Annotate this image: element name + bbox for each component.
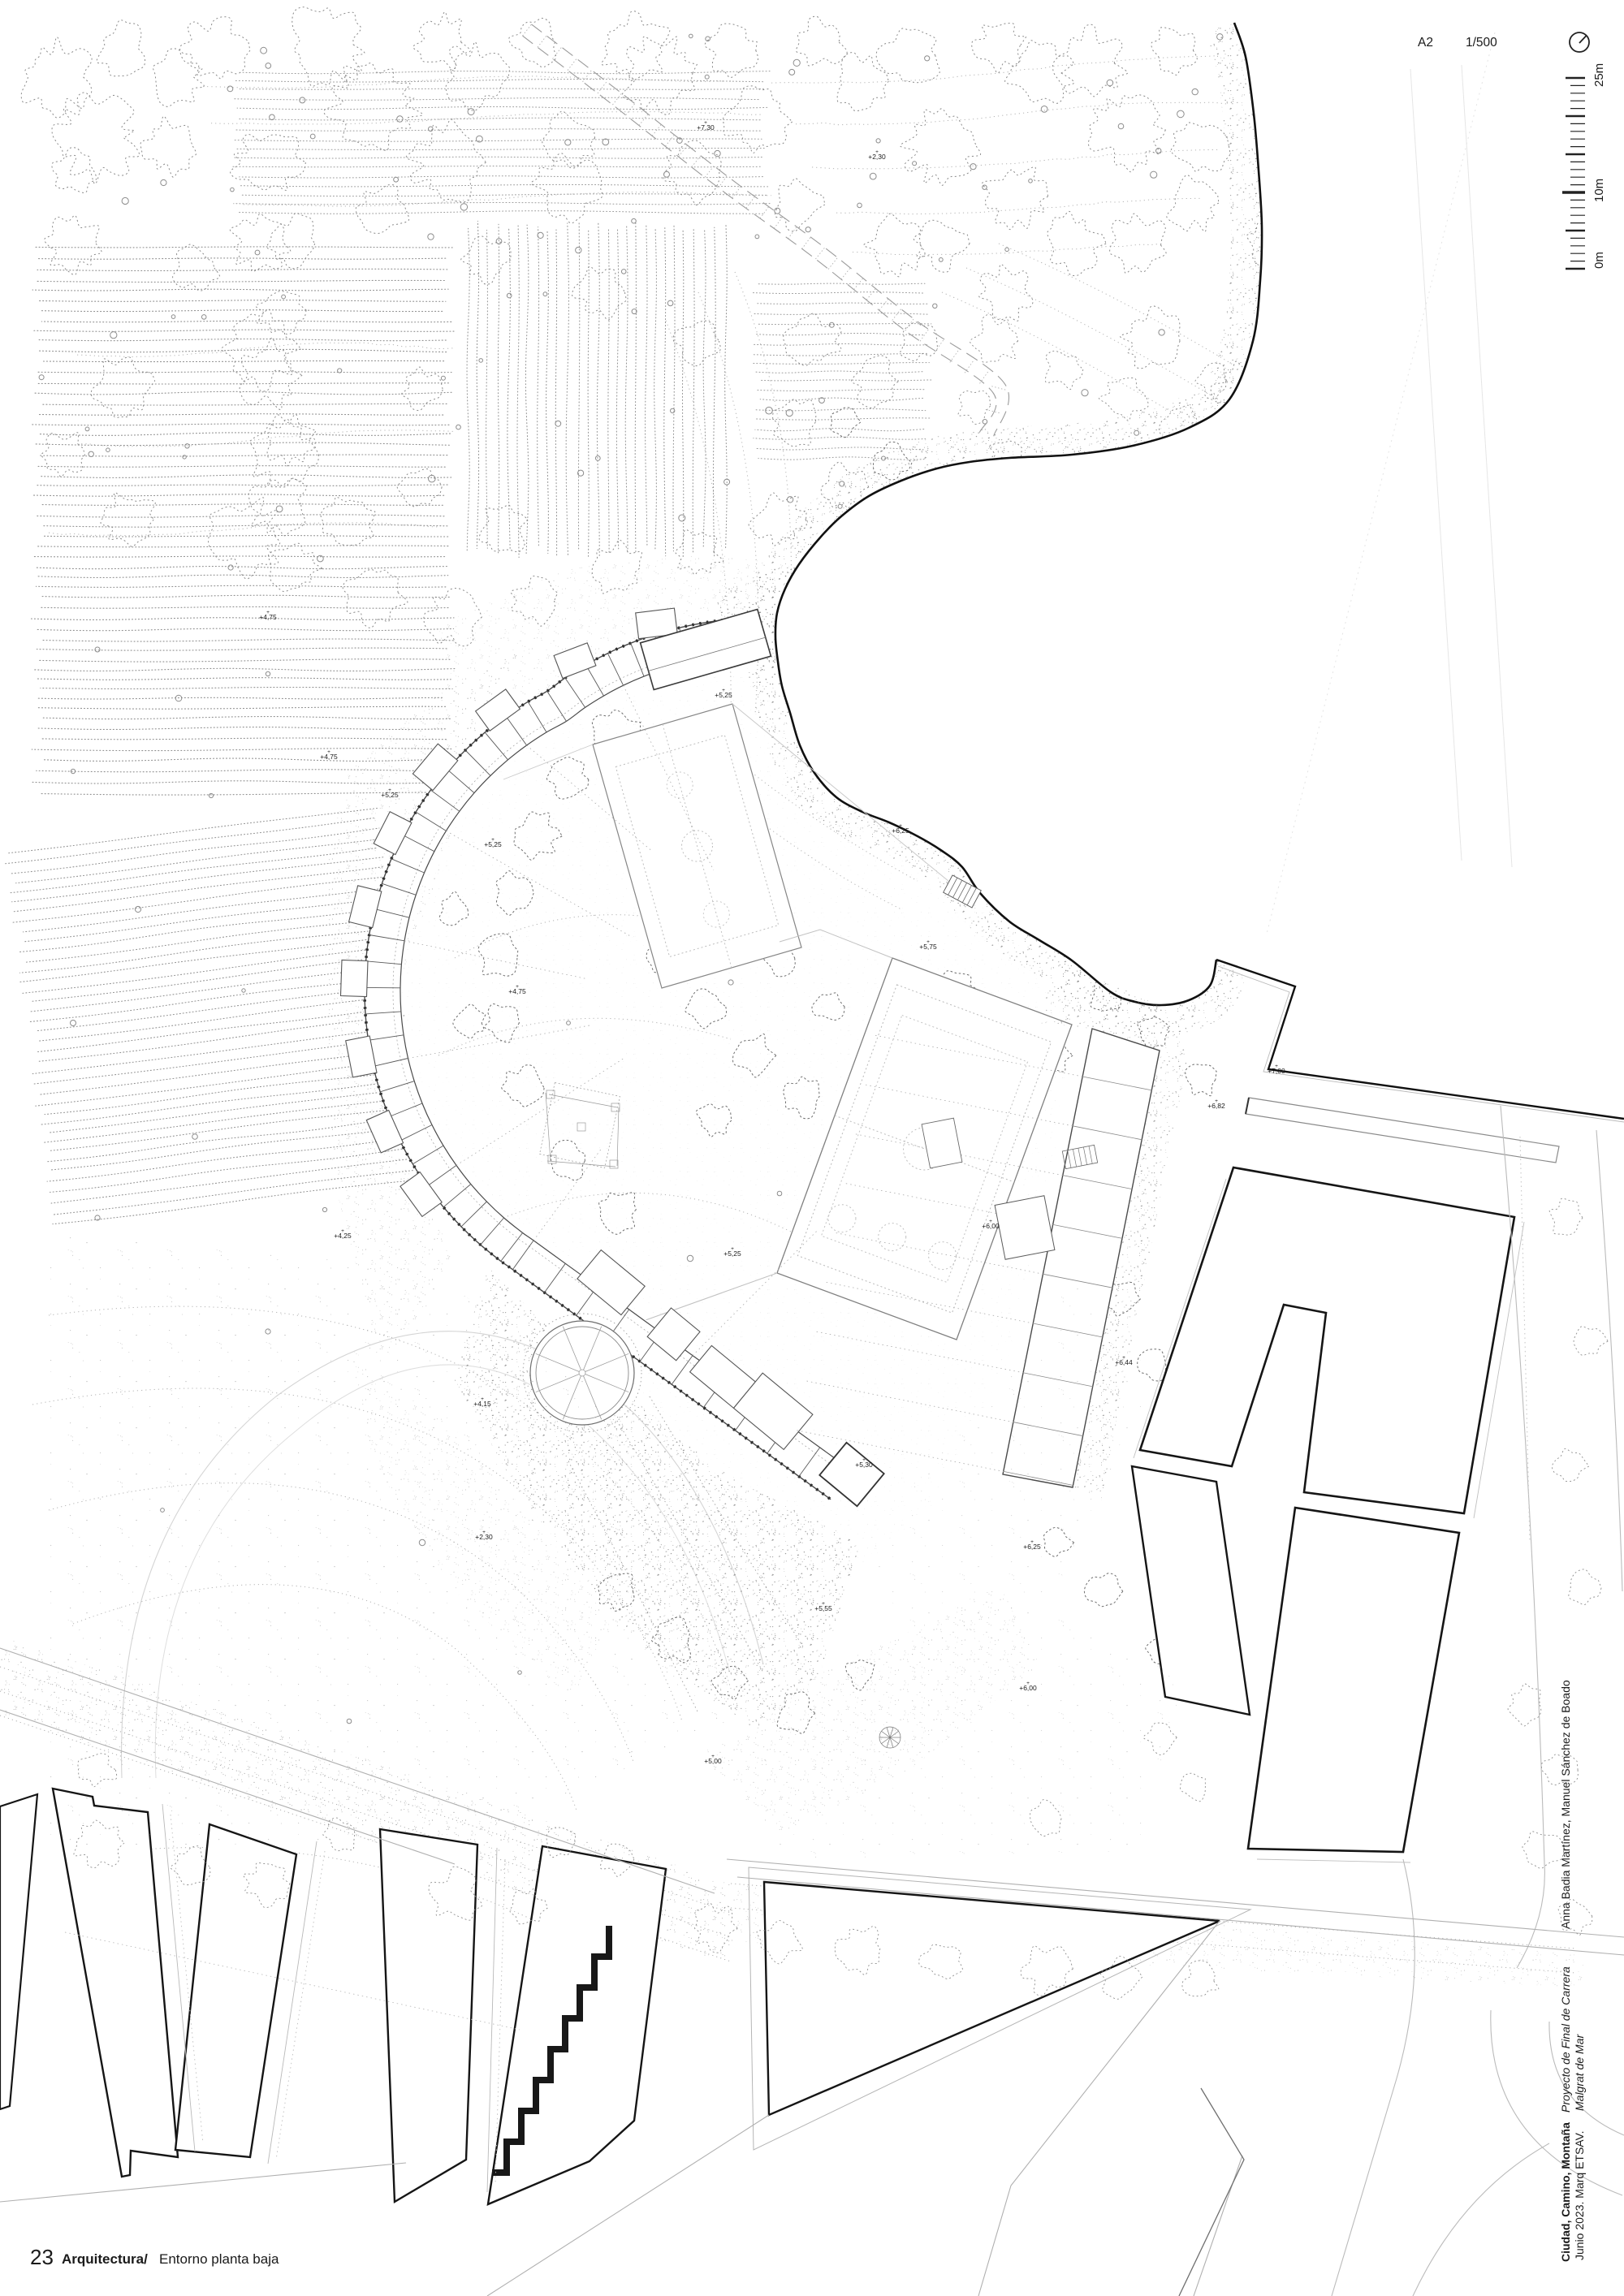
svg-text:+: + <box>1026 1681 1030 1686</box>
svg-text:Junio 2023. Marq ETSAV.: Junio 2023. Marq ETSAV. <box>1573 2130 1586 2260</box>
svg-text:Arquitectura/: Arquitectura/ <box>62 2251 148 2267</box>
svg-text:Anna Badia Martínez, Manuel Sá: Anna Badia Martínez, Manuel Sánchez de B… <box>1559 1680 1572 1929</box>
svg-text:10m: 10m <box>1592 179 1606 202</box>
svg-text:+: + <box>1030 1539 1034 1545</box>
svg-text:+: + <box>711 1754 715 1759</box>
svg-text:+: + <box>862 1457 866 1463</box>
svg-text:+: + <box>926 939 930 945</box>
svg-text:Ciudad, Camino, Montaña: Ciudad, Camino, Montaña <box>1559 2122 1572 2262</box>
svg-text:+: + <box>1275 1064 1278 1069</box>
svg-text:+: + <box>1215 1098 1218 1104</box>
svg-text:+: + <box>989 1219 992 1224</box>
svg-text:23: 23 <box>30 2245 54 2269</box>
svg-text:+: + <box>481 1396 484 1402</box>
svg-text:+: + <box>266 610 270 615</box>
svg-text:+: + <box>875 149 879 155</box>
svg-text:0m: 0m <box>1592 252 1606 269</box>
svg-text:+: + <box>327 749 330 755</box>
svg-text:+: + <box>822 1601 825 1607</box>
svg-text:+: + <box>899 823 902 829</box>
svg-text:25m: 25m <box>1592 63 1606 87</box>
svg-text:+: + <box>482 1530 486 1535</box>
svg-text:+: + <box>341 1228 344 1234</box>
svg-text:Entorno planta baja: Entorno planta baja <box>159 2251 279 2267</box>
svg-text:+: + <box>516 984 519 990</box>
svg-text:1/500: 1/500 <box>1466 36 1497 50</box>
svg-text:+: + <box>731 1246 734 1252</box>
svg-text:A2: A2 <box>1418 36 1433 50</box>
svg-text:Malgrat de Mar: Malgrat de Mar <box>1573 2034 1586 2111</box>
svg-text:+: + <box>704 120 707 126</box>
svg-text:+: + <box>1122 1355 1125 1361</box>
svg-text:+: + <box>722 688 725 693</box>
svg-text:+: + <box>491 837 495 843</box>
svg-text:Proyecto de Final de Carrera: Proyecto de Final de Carrera <box>1559 1966 1572 2113</box>
svg-text:+: + <box>388 788 391 793</box>
